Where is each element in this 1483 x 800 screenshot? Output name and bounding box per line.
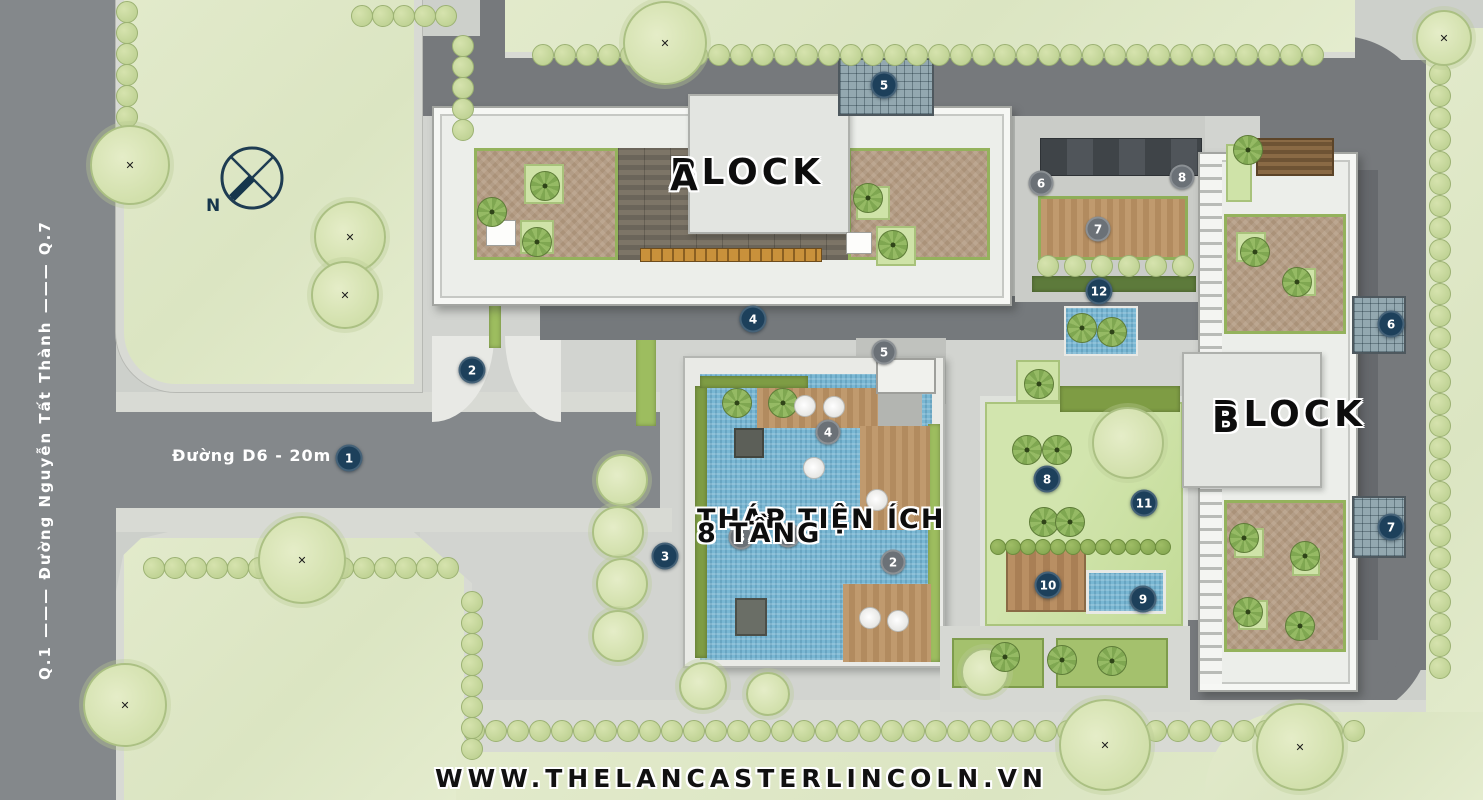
road-left-label: Q.1 ——— Đường Nguyễn Tất Thành ——— Q.7 [36, 80, 54, 680]
site-marker-5: 5 [872, 340, 897, 365]
road-d6-label: Đường D6 - 20m [172, 446, 331, 465]
site-marker-2: 2 [881, 550, 906, 575]
site-marker-5: 5 [871, 72, 898, 99]
block-a-label-line2: A [670, 156, 702, 202]
compass-north-label: N [206, 196, 220, 216]
site-marker-9: 9 [1130, 586, 1157, 613]
amenity-label-line2: 8 TẦNG [697, 518, 821, 549]
site-marker-4: 4 [816, 420, 841, 445]
site-marker-11: 11 [1131, 490, 1158, 517]
site-marker-7: 7 [1378, 514, 1405, 541]
site-marker-12: 12 [1086, 278, 1113, 305]
site-marker-3: 3 [652, 543, 679, 570]
block-b-label-line2: B [1212, 398, 1243, 444]
site-marker-1: 1 [336, 445, 363, 472]
website-url: WWW.THELANCASTERLINCOLN.VN [0, 764, 1483, 793]
site-marker-7: 7 [1086, 217, 1111, 242]
site-plan-canvas: ✕✕✕✕✕✕✕✕✕ 12345128111096767854312 N Q.1 … [0, 0, 1483, 800]
site-marker-8: 8 [1034, 466, 1061, 493]
site-marker-6: 6 [1378, 311, 1405, 338]
site-marker-6: 6 [1029, 171, 1054, 196]
site-marker-10: 10 [1035, 572, 1062, 599]
site-marker-4: 4 [740, 306, 767, 333]
site-marker-8: 8 [1170, 165, 1195, 190]
site-marker-2: 2 [459, 357, 486, 384]
